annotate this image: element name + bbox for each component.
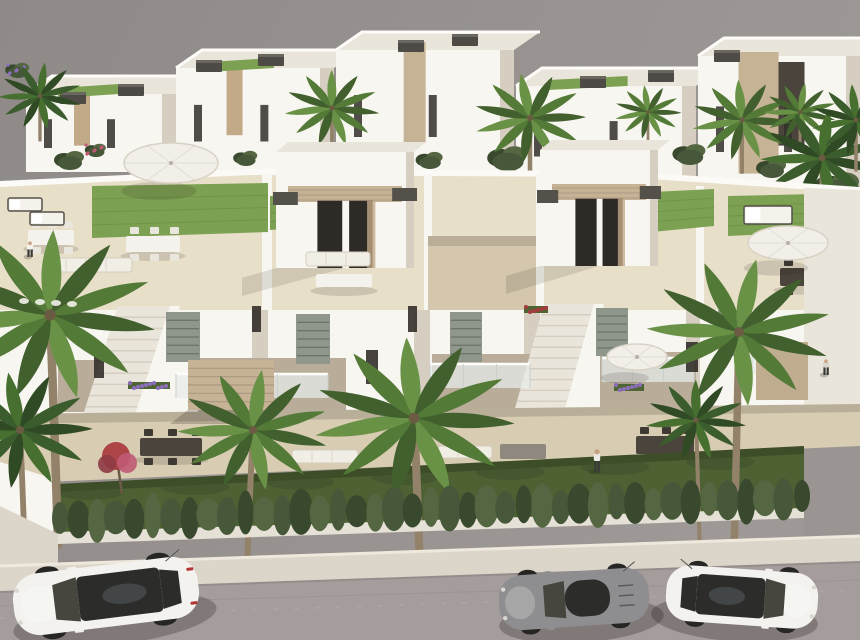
chair: [150, 227, 159, 234]
villa-roof: [336, 32, 540, 50]
chair: [64, 247, 73, 254]
side-mirror: [544, 571, 552, 576]
flower-dot: [528, 310, 532, 314]
cypress-shrub: [753, 480, 777, 516]
cypress-shrub: [439, 485, 461, 531]
daybed-pillow: [746, 208, 760, 222]
ac-top: [648, 70, 674, 73]
side-mirror: [761, 624, 769, 629]
lawn-mottle: [161, 479, 229, 495]
chair: [130, 227, 139, 234]
palm-core: [409, 413, 420, 424]
person-torso: [823, 362, 829, 367]
cypress-shrub: [459, 492, 477, 528]
flower-dot: [544, 306, 548, 310]
palm-flower-spike: [35, 299, 45, 305]
flower-dot: [136, 385, 140, 389]
cypress-shrub: [217, 497, 237, 535]
flower-dot: [93, 148, 96, 151]
dark-cap: [273, 192, 298, 205]
flower-dot: [634, 384, 638, 388]
flower-dot: [160, 385, 164, 389]
flower-box: [128, 381, 170, 390]
tower-roof: [276, 142, 426, 152]
tree-canopy: [117, 453, 137, 473]
chair: [662, 427, 671, 434]
palm-core: [527, 115, 533, 121]
palm-core: [854, 118, 859, 123]
daybed: [744, 206, 792, 224]
flower-dot: [100, 145, 103, 148]
person-legs: [598, 460, 600, 472]
cypress-shrub: [104, 500, 128, 534]
shrub-blob: [58, 156, 82, 170]
cypress-shrub: [366, 494, 384, 532]
flower-dot: [164, 384, 168, 388]
person-torso: [594, 454, 600, 461]
cypress-shrub: [289, 489, 313, 535]
parasol-hub: [635, 355, 639, 359]
parasol-hub: [169, 161, 173, 165]
ac-top: [714, 50, 740, 53]
ac-unit: [580, 76, 606, 88]
ac-unit: [714, 50, 740, 62]
cypress-shrub: [701, 482, 717, 516]
flower-dot: [638, 383, 642, 387]
windshield: [763, 578, 786, 620]
flower-dot: [6, 63, 9, 66]
dining-table: [121, 227, 186, 261]
tree-canopy: [98, 455, 116, 473]
cypress-shrub: [609, 484, 625, 520]
palm-core: [44, 309, 55, 320]
side-mirror: [765, 569, 773, 574]
flower-dot: [630, 385, 634, 389]
person-legs: [31, 249, 33, 257]
sofa-body: [306, 252, 370, 266]
shrub-blob: [760, 164, 784, 178]
cypress-shrub: [382, 487, 406, 531]
shrub-blob: [492, 153, 523, 171]
flower-dot: [8, 71, 11, 74]
parasol-shadow: [601, 372, 649, 384]
flower-dot: [152, 381, 156, 385]
flower-box: [614, 383, 644, 392]
palm-flower-spike: [19, 298, 29, 304]
flower-dot: [536, 308, 540, 312]
palm-core: [38, 94, 43, 99]
ac-unit: [196, 60, 222, 72]
cypress-shrub: [238, 491, 254, 535]
cypress-shrub: [531, 484, 553, 528]
cypress-shrub: [475, 485, 499, 527]
person-legs: [27, 249, 29, 257]
cypress-shrub: [681, 480, 701, 524]
sofa: [292, 450, 358, 463]
flower-dot: [140, 384, 144, 388]
person-legs: [594, 460, 596, 472]
ac-unit: [258, 54, 284, 66]
wood-accent: [227, 62, 243, 135]
chair: [168, 429, 177, 436]
cypress-shrub: [330, 489, 346, 531]
rear-window: [680, 575, 698, 612]
cypress-shrub: [645, 488, 663, 520]
chair: [170, 227, 179, 234]
cabin-glass: [564, 578, 611, 617]
parasol-hub: [786, 241, 790, 245]
dark-cap: [537, 190, 558, 203]
villa-window: [107, 119, 115, 148]
cypress-shrub: [567, 484, 591, 524]
palm-core: [16, 426, 24, 434]
palm-core: [329, 105, 334, 110]
flower-dot: [132, 386, 136, 390]
chair: [150, 254, 159, 261]
dining-table: [310, 274, 377, 296]
palm-flower-spike: [51, 300, 61, 306]
cypress-shrub: [124, 499, 144, 539]
palm-core: [819, 155, 826, 162]
flower-dot: [524, 305, 528, 309]
engine-vent: [618, 585, 633, 586]
tower-side-shade: [650, 150, 658, 266]
flower-dot: [626, 386, 630, 390]
cypress-shrub: [495, 492, 515, 524]
flower-dot: [128, 381, 132, 385]
engine-vent: [619, 595, 634, 596]
daybed: [30, 212, 64, 225]
ac-top: [118, 84, 144, 87]
flower-dot: [15, 68, 18, 71]
lawn-mottle: [476, 464, 544, 480]
car-body-group: [664, 558, 820, 635]
cypress-shrub: [737, 479, 755, 525]
scene-svg: [0, 0, 860, 640]
rooftop-lawn: [652, 189, 714, 232]
cypress-shrub: [717, 480, 739, 520]
person-head: [824, 359, 828, 363]
ac-unit: [398, 40, 424, 52]
chair: [168, 458, 177, 465]
windshield: [543, 581, 567, 620]
flower-dot: [156, 386, 160, 390]
gray-lounger: [500, 444, 546, 459]
palm-core: [646, 110, 650, 114]
person-legs: [827, 367, 829, 375]
cypress-shrub: [145, 492, 161, 538]
ac-unit: [648, 70, 674, 82]
person-head: [28, 241, 32, 245]
ac-top: [258, 54, 284, 57]
cypress-shrub: [52, 502, 68, 534]
flower-dot: [532, 309, 536, 313]
villa-window: [260, 105, 268, 142]
cypress-shrub: [624, 482, 646, 524]
ac-top: [580, 76, 606, 79]
cypress-shrub: [68, 500, 90, 538]
palm-core: [734, 327, 744, 337]
wood-lining: [618, 199, 625, 266]
cypress-shrub: [552, 490, 570, 524]
ac-top: [196, 60, 222, 63]
shrub-blob: [419, 156, 441, 169]
table-top: [126, 236, 180, 252]
cypress-shrub: [310, 495, 330, 531]
table-shadow: [310, 286, 377, 296]
flower-dot: [618, 388, 622, 392]
palm-core: [249, 426, 257, 434]
table-top: [316, 274, 372, 287]
stone-accent: [404, 42, 426, 143]
villa-side-shade: [682, 86, 696, 186]
chair: [144, 429, 153, 436]
cypress-shrub: [423, 487, 439, 527]
tower-side-shade: [406, 152, 414, 268]
ac-top: [398, 40, 424, 43]
lawn-mottle: [56, 484, 124, 500]
flower-dot: [144, 383, 148, 387]
daybed-pillow: [10, 200, 20, 209]
person-torso: [27, 244, 33, 249]
palm-core: [693, 417, 698, 422]
daybed-pillow: [32, 214, 42, 223]
shrub-blob: [677, 150, 703, 165]
slit-window: [408, 306, 417, 332]
cypress-shrub: [181, 497, 199, 539]
chair: [640, 427, 649, 434]
dark-cap: [640, 186, 661, 199]
cypress-shrub: [588, 482, 608, 528]
flower-dot: [86, 151, 89, 154]
chair: [144, 458, 153, 465]
lawn-mottle: [266, 474, 334, 490]
cypress-shrub: [274, 495, 292, 535]
slit-window: [252, 306, 261, 332]
chair: [32, 247, 41, 254]
cypress-shrub: [794, 480, 810, 512]
parasol-shadow: [121, 182, 196, 200]
cypress-shrub: [773, 479, 793, 521]
car-body-group: [497, 561, 651, 637]
person-head: [594, 449, 599, 454]
cypress-shrub: [253, 497, 275, 531]
architectural-render: [0, 0, 860, 640]
palm-core: [798, 110, 802, 114]
tower-roof: [540, 140, 670, 150]
flower-dot: [622, 387, 626, 391]
chair: [64, 221, 73, 228]
side-mirror: [547, 626, 555, 631]
cypress-shrub: [88, 499, 106, 543]
ac-unit: [118, 84, 144, 96]
daybed: [8, 198, 42, 211]
cypress-shrub: [196, 499, 220, 531]
chair: [170, 254, 179, 261]
palm-flower-spike: [67, 301, 77, 307]
table-top: [140, 438, 202, 456]
palm-core: [739, 117, 744, 122]
cypress-shrub: [660, 482, 684, 520]
lawn-patch: [652, 189, 714, 232]
dark-cap: [392, 188, 417, 201]
flower-dot: [84, 143, 87, 146]
flower-box: [524, 305, 548, 314]
cypress-shrub: [402, 494, 422, 528]
sofa: [306, 252, 370, 266]
louvered-shutter: [166, 312, 200, 362]
cypress-shrub: [160, 499, 182, 535]
louvered-shutter: [296, 314, 330, 364]
person-legs: [823, 367, 825, 375]
ac-top: [452, 34, 478, 37]
ac-unit: [452, 34, 478, 46]
cypress-shrub: [346, 495, 368, 527]
engine-vent: [620, 605, 635, 606]
villa-window: [429, 95, 437, 137]
shrub-blob: [236, 155, 255, 166]
sofa-body: [292, 450, 358, 463]
cypress-shrub: [516, 485, 532, 523]
opening-mullion: [597, 199, 603, 266]
flower-dot: [148, 382, 152, 386]
courtyard-shadow: [428, 236, 536, 246]
villa-window: [194, 105, 202, 142]
flower-dot: [540, 307, 544, 311]
